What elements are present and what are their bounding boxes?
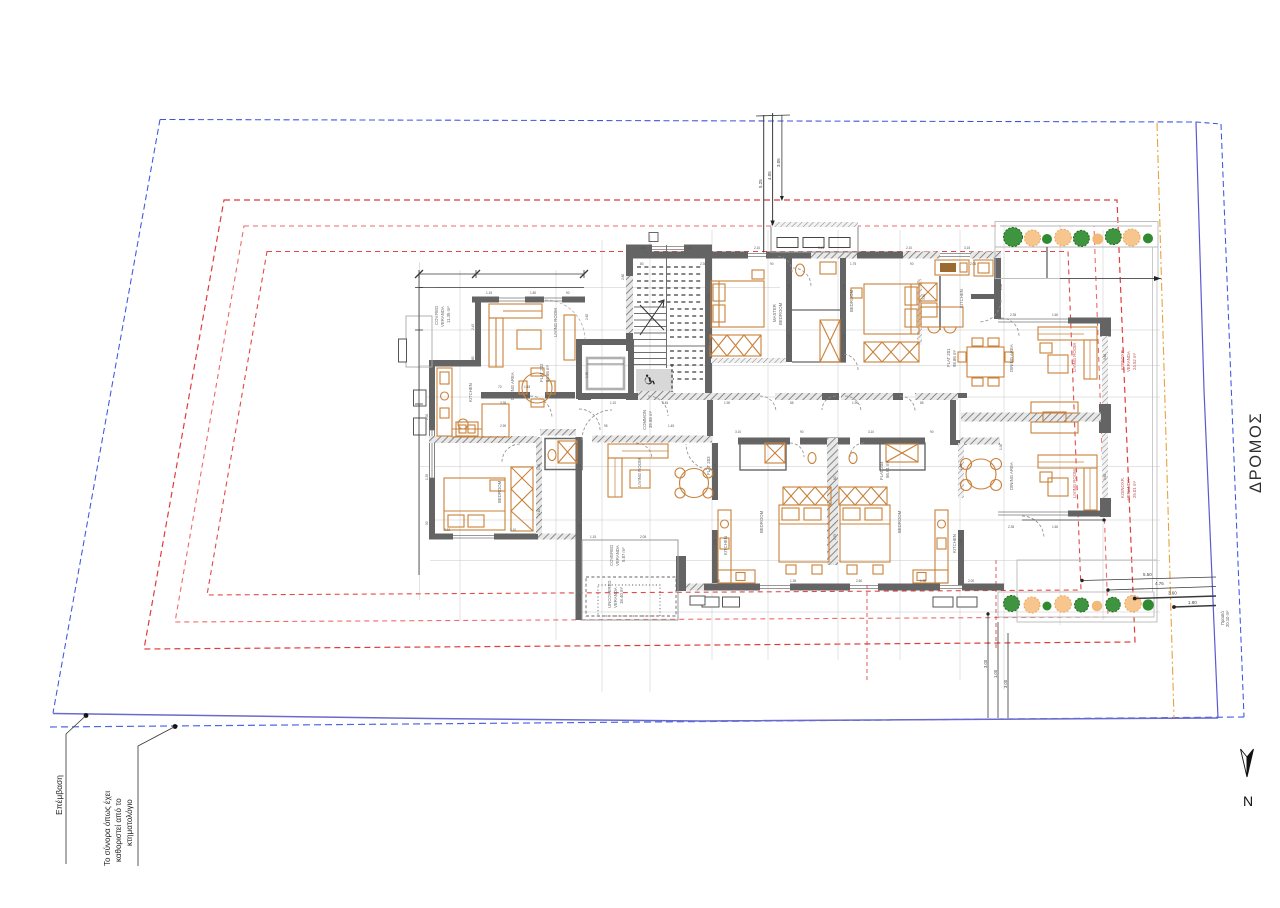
svg-text:2.05: 2.05 <box>970 262 976 266</box>
svg-text:VERANDA: VERANDA <box>615 545 620 566</box>
svg-text:85: 85 <box>920 401 924 405</box>
svg-text:3.60: 3.60 <box>1103 354 1107 360</box>
svg-text:ΔΡΟΜΟΣ: ΔΡΟΜΟΣ <box>1247 412 1265 493</box>
svg-text:2.35: 2.35 <box>1008 525 1014 529</box>
svg-text:N: N <box>1243 793 1253 809</box>
svg-text:56.61 m²: 56.61 m² <box>712 455 717 473</box>
svg-text:1.30: 1.30 <box>585 372 589 378</box>
svg-text:FLAT 202: FLAT 202 <box>539 363 544 382</box>
svg-text:90: 90 <box>425 521 429 525</box>
svg-text:3.10: 3.10 <box>868 430 874 434</box>
svg-text:3.35: 3.35 <box>500 401 506 405</box>
svg-text:1.35: 1.35 <box>707 339 711 345</box>
svg-text:1.20: 1.20 <box>842 334 846 340</box>
svg-text:90: 90 <box>910 262 914 266</box>
svg-text:2.40: 2.40 <box>578 524 582 530</box>
svg-text:DINING AREA: DINING AREA <box>510 372 515 400</box>
svg-text:2.95: 2.95 <box>578 594 582 600</box>
svg-text:2.75: 2.75 <box>833 534 837 540</box>
svg-text:3.60: 3.60 <box>1103 474 1107 480</box>
svg-text:5.25: 5.25 <box>758 179 763 188</box>
svg-text:1.45: 1.45 <box>668 424 674 428</box>
svg-text:3.60: 3.60 <box>1168 591 1177 596</box>
svg-text:FLAT 201: FLAT 201 <box>946 348 951 367</box>
svg-text:3.10: 3.10 <box>444 528 450 532</box>
svg-text:UNCOVERED: UNCOVERED <box>607 581 612 608</box>
svg-text:1.00: 1.00 <box>993 669 998 678</box>
svg-text:80: 80 <box>471 356 475 360</box>
svg-text:DINING AREA: DINING AREA <box>1009 344 1014 372</box>
svg-text:3.00: 3.00 <box>1003 679 1008 688</box>
svg-text:4.05: 4.05 <box>767 171 772 180</box>
svg-text:COMMON: COMMON <box>642 410 647 430</box>
svg-text:2.05: 2.05 <box>640 535 646 539</box>
svg-text:2.45: 2.45 <box>471 324 475 330</box>
svg-text:2.60: 2.60 <box>856 579 862 583</box>
svg-text:1.20: 1.20 <box>686 246 692 250</box>
svg-text:1.90: 1.90 <box>724 401 730 405</box>
svg-text:3.30: 3.30 <box>707 294 711 300</box>
svg-text:Επέμβαση: Επέμβαση <box>54 775 64 815</box>
svg-text:56.61 m²: 56.61 m² <box>885 460 890 478</box>
svg-text:1.60: 1.60 <box>1052 313 1058 317</box>
svg-text:3.80: 3.80 <box>640 246 646 250</box>
svg-text:DINING AREA: DINING AREA <box>1009 462 1014 490</box>
svg-text:BEDROOM: BEDROOM <box>897 510 902 533</box>
svg-text:2.00: 2.00 <box>968 579 974 583</box>
svg-text:VERANDA: VERANDA <box>440 306 445 327</box>
svg-text:85: 85 <box>790 401 794 405</box>
svg-text:KITCHEN: KITCHEN <box>468 383 473 402</box>
svg-text:24.52 m²: 24.52 m² <box>1132 352 1137 370</box>
svg-text:2.80: 2.80 <box>713 539 717 545</box>
svg-text:KOINOXR.: KOINOXR. <box>1120 349 1125 370</box>
svg-text:2.90: 2.90 <box>500 424 506 428</box>
svg-text:25.01 m²: 25.01 m² <box>1132 480 1137 498</box>
svg-text:BEDROOM: BEDROOM <box>849 289 854 312</box>
svg-text:KITCHEN: KITCHEN <box>959 289 964 308</box>
svg-text:2.80: 2.80 <box>959 539 963 545</box>
svg-text:3.05: 3.05 <box>776 158 781 167</box>
svg-text:1.90: 1.90 <box>852 401 858 405</box>
svg-text:2.10: 2.10 <box>754 246 760 250</box>
svg-text:90: 90 <box>770 262 774 266</box>
svg-text:VERANDA: VERANDA <box>1126 351 1131 372</box>
svg-text:1.10: 1.10 <box>610 401 616 405</box>
svg-text:2.80: 2.80 <box>621 274 625 280</box>
svg-text:1.35: 1.35 <box>920 579 926 583</box>
svg-text:1.20: 1.20 <box>787 334 791 340</box>
svg-text:1.35: 1.35 <box>790 579 796 583</box>
svg-text:LIVING ROOM: LIVING ROOM <box>1072 343 1077 372</box>
svg-text:2.50: 2.50 <box>999 284 1003 290</box>
svg-text:1.60: 1.60 <box>959 464 963 470</box>
svg-text:KITCHEN: KITCHEN <box>952 534 957 553</box>
svg-text:1.10: 1.10 <box>510 528 516 532</box>
svg-text:κτηματολόγιο: κτηματολόγιο <box>125 799 134 846</box>
svg-text:90: 90 <box>930 430 934 434</box>
svg-text:VERANDA: VERANDA <box>1126 479 1131 500</box>
svg-text:Το σύνορα όπως έχει: Το σύνορα όπως έχει <box>103 791 112 866</box>
svg-text:3.45: 3.45 <box>818 246 824 250</box>
svg-text:COV.RED: COV.RED <box>434 306 439 325</box>
svg-text:80: 80 <box>640 262 644 266</box>
svg-text:90: 90 <box>566 291 570 295</box>
svg-text:1.35: 1.35 <box>425 474 429 480</box>
svg-text:BEDROOM: BEDROOM <box>778 302 783 325</box>
svg-text:60: 60 <box>833 476 837 480</box>
svg-text:FLAT 204: FLAT 204 <box>879 461 884 480</box>
svg-text:1.15: 1.15 <box>590 535 596 539</box>
svg-text:4.76: 4.76 <box>1155 581 1164 586</box>
svg-text:KITCHEN: KITCHEN <box>723 536 728 555</box>
svg-text:18.40 m²: 18.40 m² <box>619 586 624 604</box>
svg-text:95: 95 <box>604 424 608 428</box>
svg-text:98.86 m²: 98.86 m² <box>545 364 550 382</box>
svg-text:BEDROOM: BEDROOM <box>497 480 502 503</box>
svg-text:20.10 m²: 20.10 m² <box>1225 610 1230 627</box>
svg-text:FLAT 203: FLAT 203 <box>706 456 711 475</box>
svg-text:2.35: 2.35 <box>1010 313 1016 317</box>
svg-text:2.90: 2.90 <box>425 414 429 420</box>
svg-text:90: 90 <box>800 430 804 434</box>
svg-text:5.50: 5.50 <box>1143 572 1152 577</box>
svg-text:2.60: 2.60 <box>714 579 720 583</box>
svg-text:LIVING ROOM: LIVING ROOM <box>553 308 558 337</box>
svg-text:39.88 m²: 39.88 m² <box>648 410 653 428</box>
svg-text:3.15: 3.15 <box>964 246 970 250</box>
svg-text:1.80: 1.80 <box>1188 600 1197 605</box>
svg-text:1.45: 1.45 <box>524 385 530 389</box>
svg-text:MASTER: MASTER <box>772 304 777 322</box>
svg-text:καθοριστεί από το: καθοριστεί από το <box>114 798 123 862</box>
svg-text:2.90: 2.90 <box>842 284 846 290</box>
svg-text:70: 70 <box>498 385 502 389</box>
svg-text:COVERED: COVERED <box>609 545 614 566</box>
svg-text:1.30: 1.30 <box>537 464 541 470</box>
svg-text:98.86 m²: 98.86 m² <box>952 349 957 367</box>
svg-text:3.10: 3.10 <box>735 430 741 434</box>
svg-text:11.35 m²: 11.35 m² <box>446 306 451 323</box>
svg-text:KOINOXR.: KOINOXR. <box>1120 477 1125 498</box>
svg-text:5.87 m²: 5.87 m² <box>621 547 626 562</box>
svg-text:1.75: 1.75 <box>850 262 856 266</box>
svg-text:1.90: 1.90 <box>999 444 1003 450</box>
svg-text:1.15: 1.15 <box>486 291 492 295</box>
svg-text:2.10: 2.10 <box>537 509 541 515</box>
svg-text:1.80: 1.80 <box>578 464 582 470</box>
svg-text:1.80: 1.80 <box>530 291 536 295</box>
svg-text:2.10: 2.10 <box>906 246 912 250</box>
svg-text:VERANDA: VERANDA <box>613 587 618 608</box>
svg-text:BEDROOM: BEDROOM <box>759 510 764 533</box>
svg-text:3.00: 3.00 <box>983 659 988 668</box>
svg-text:LIVING ROOM: LIVING ROOM <box>637 458 642 487</box>
svg-text:1.60: 1.60 <box>1052 525 1058 529</box>
svg-text:LIVING ROOM: LIVING ROOM <box>1072 469 1077 498</box>
svg-text:2.65: 2.65 <box>585 314 589 320</box>
svg-text:2.30: 2.30 <box>700 262 706 266</box>
svg-text:2.90: 2.90 <box>787 284 791 290</box>
svg-text:2.45: 2.45 <box>662 401 668 405</box>
svg-text:3.30: 3.30 <box>922 294 926 300</box>
